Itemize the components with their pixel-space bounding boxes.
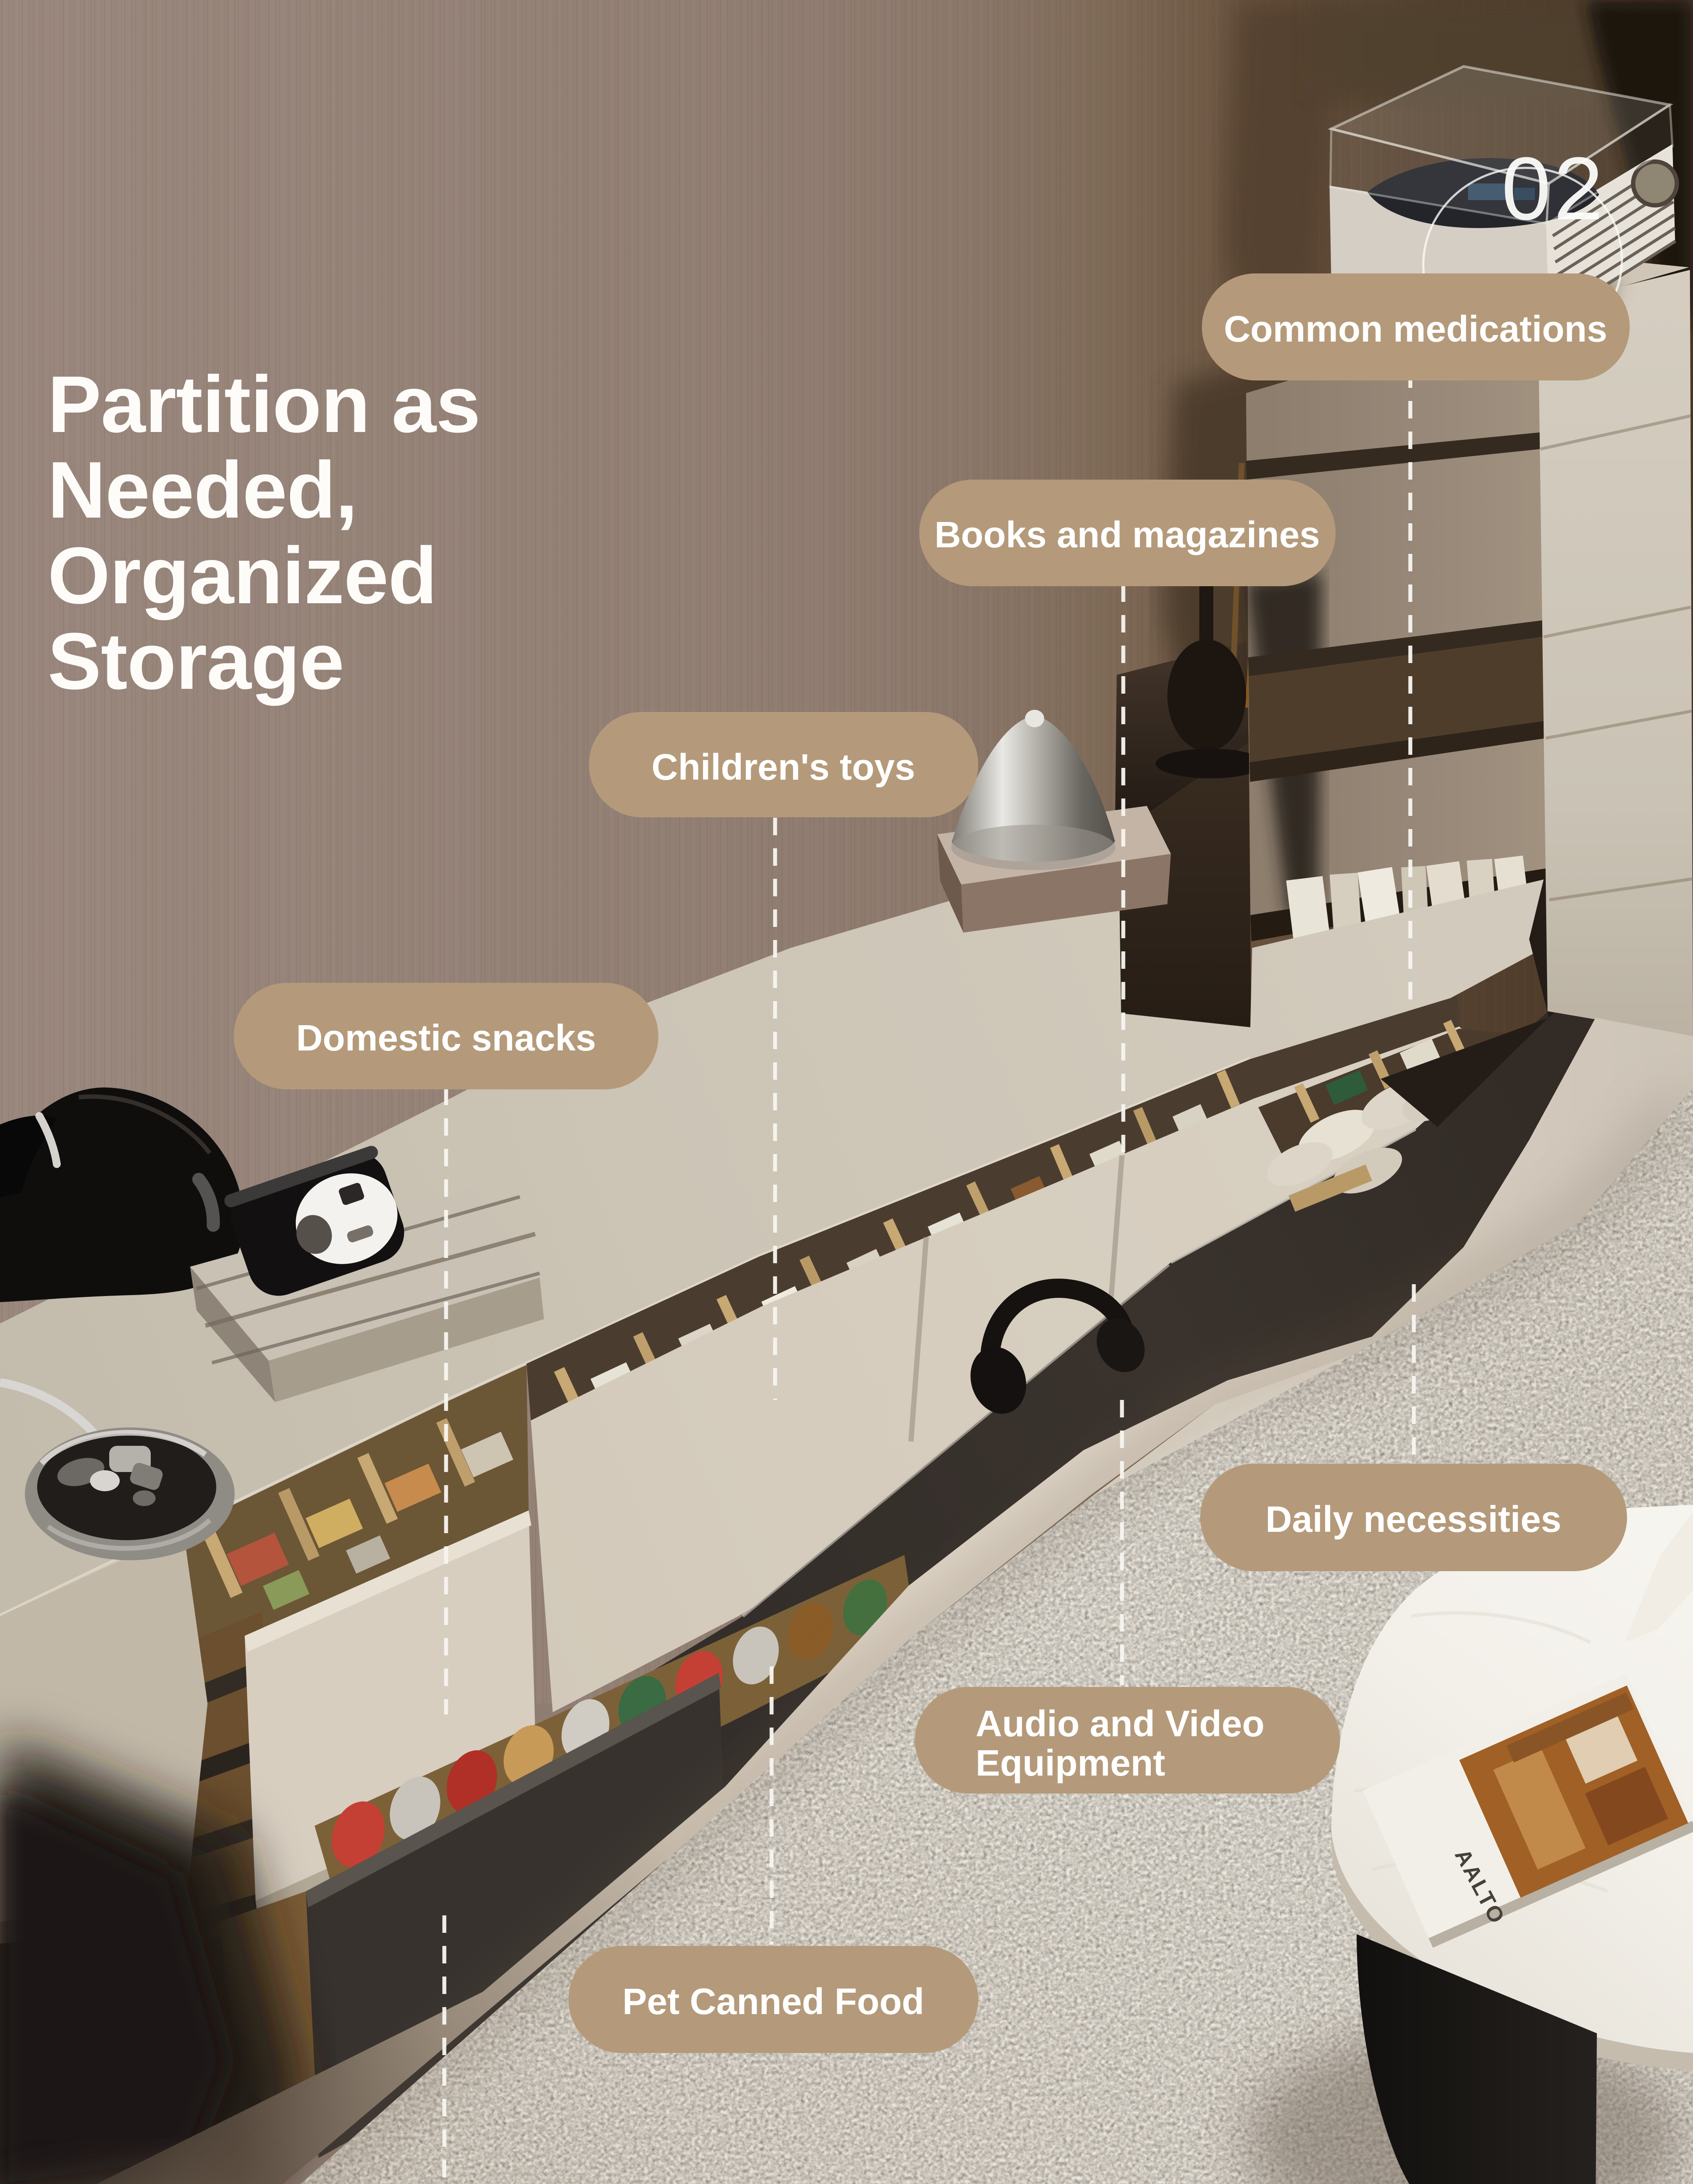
svg-text:02: 02	[1502, 139, 1606, 238]
svg-text:Books and magazines: Books and magazines	[935, 514, 1320, 555]
svg-text:Needed,: Needed,	[48, 445, 357, 535]
svg-text:Organized: Organized	[48, 530, 437, 620]
svg-text:Daily necessities: Daily necessities	[1265, 1499, 1561, 1540]
svg-text:Pet Canned Food: Pet Canned Food	[623, 1981, 924, 2022]
svg-text:Domestic snacks: Domestic snacks	[296, 1017, 596, 1058]
svg-text:Storage: Storage	[48, 616, 344, 706]
svg-text:Equipment: Equipment	[976, 1742, 1165, 1783]
svg-text:Audio and Video: Audio and Video	[976, 1703, 1264, 1744]
svg-text:Children's toys: Children's toys	[651, 746, 915, 788]
svg-text:Partition as: Partition as	[48, 359, 480, 449]
svg-text:Common medications: Common medications	[1224, 308, 1607, 349]
